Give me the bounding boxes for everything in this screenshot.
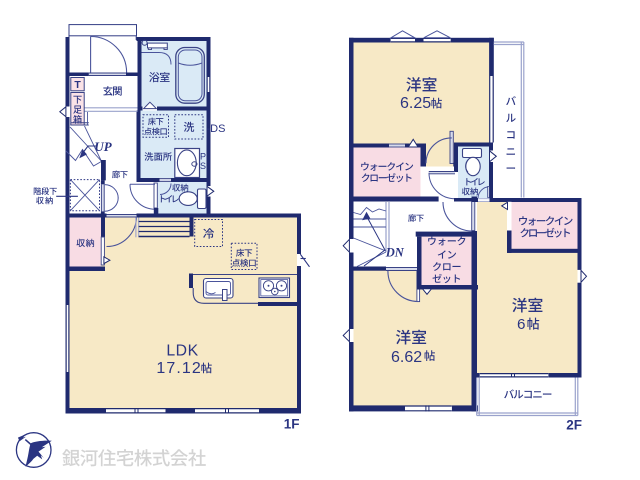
svg-text:1F: 1F xyxy=(284,416,300,431)
svg-text:6.25: 6.25 xyxy=(400,95,431,112)
svg-text:2F: 2F xyxy=(566,418,582,433)
svg-text:UP: UP xyxy=(94,139,112,154)
svg-text:6.62: 6.62 xyxy=(391,349,422,366)
svg-text:S: S xyxy=(200,161,206,171)
svg-text:6: 6 xyxy=(517,316,525,333)
svg-text:-DS: -DS xyxy=(207,123,226,135)
svg-text:DN: DN xyxy=(385,245,405,259)
svg-text:T: T xyxy=(74,79,81,91)
svg-text:17.12: 17.12 xyxy=(156,360,202,377)
svg-text:LDK: LDK xyxy=(166,342,198,359)
